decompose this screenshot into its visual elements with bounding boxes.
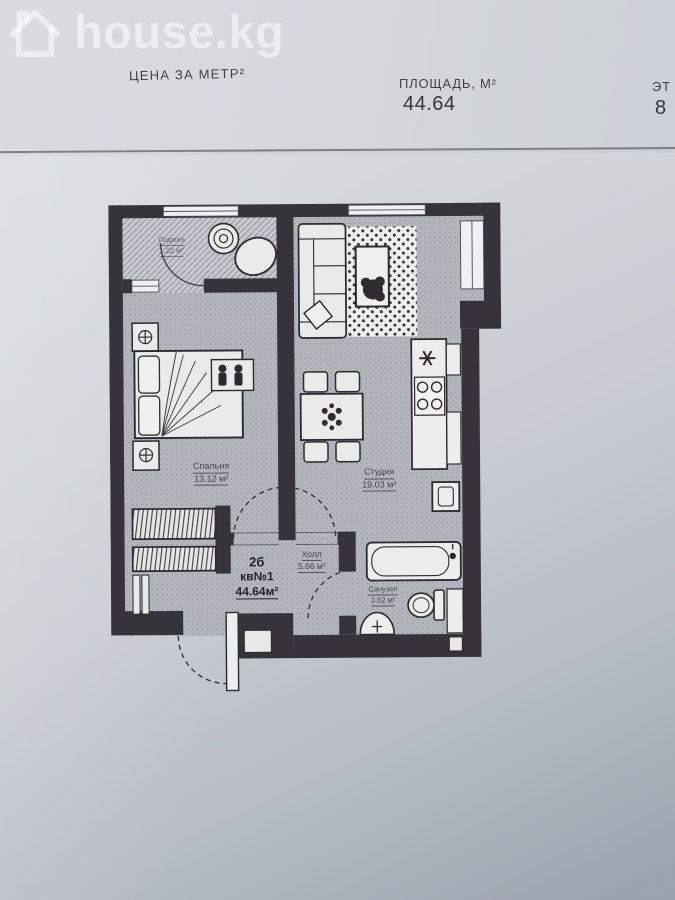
apartment-area: 44.64м²	[223, 584, 291, 599]
area-label: ПЛОЩАДЬ, М²	[399, 76, 497, 91]
hall-label: Холл 5.66 м²	[288, 549, 336, 573]
nightstand-bottom	[133, 441, 159, 470]
toilet	[408, 590, 444, 620]
bathtub	[367, 542, 461, 581]
floor-plan-drawing	[108, 201, 503, 702]
bath-cabinet	[447, 589, 463, 633]
sofa	[298, 224, 346, 338]
bath-niche	[449, 637, 462, 651]
watermark: house.kg	[6, 4, 284, 60]
tall-cabinet	[447, 412, 461, 464]
apartment-type: 2б	[223, 554, 291, 569]
pillow	[138, 356, 159, 393]
tv-stand	[356, 246, 389, 306]
bed	[134, 350, 254, 438]
entrance-niche	[244, 630, 271, 652]
entrance-door-leaf	[226, 612, 239, 690]
nightstand-top	[132, 323, 158, 351]
chair	[303, 372, 327, 392]
house-icon	[6, 4, 64, 60]
floor-label: ЭТ	[652, 79, 671, 94]
bathroom-label: Санузел 3.62 м²	[355, 584, 411, 606]
entrance-door-arc	[178, 636, 226, 684]
bedroom-label: Спальня 13.12 м²	[180, 460, 242, 486]
studio-label: Студия 19.03 м²	[351, 466, 407, 492]
apartment-unit: кв№1	[223, 569, 291, 584]
chair	[304, 442, 328, 462]
apartment-label: 2б кв№1 44.64м²	[223, 554, 291, 599]
watermark-brand: house.kg	[74, 4, 284, 60]
fridge	[432, 482, 459, 511]
listing-photo: house.kg ЦЕНА ЗА МЕТР² ПЛОЩАДЬ, М² 44.64…	[0, 0, 675, 900]
tall-cabinet	[446, 344, 460, 375]
pillow	[139, 396, 160, 435]
floor-value: 8	[655, 97, 666, 120]
chair	[335, 372, 359, 392]
wardrobe-row1	[132, 509, 215, 540]
chair	[336, 442, 360, 462]
area-value: 44.64	[403, 93, 456, 116]
wardrobe-row2	[133, 547, 216, 572]
toilet-tank	[434, 590, 444, 620]
floor-plan: Лоджия 1.22 м² Спальня 13.12 м² Студия 1…	[108, 201, 503, 702]
loggia-label: Лоджия 1.22 м²	[146, 235, 196, 257]
price-per-meter-label: ЦЕНА ЗА МЕТР²	[129, 66, 245, 83]
faucet	[450, 553, 456, 559]
washing-machine	[208, 223, 238, 253]
bed-bench	[211, 359, 253, 390]
